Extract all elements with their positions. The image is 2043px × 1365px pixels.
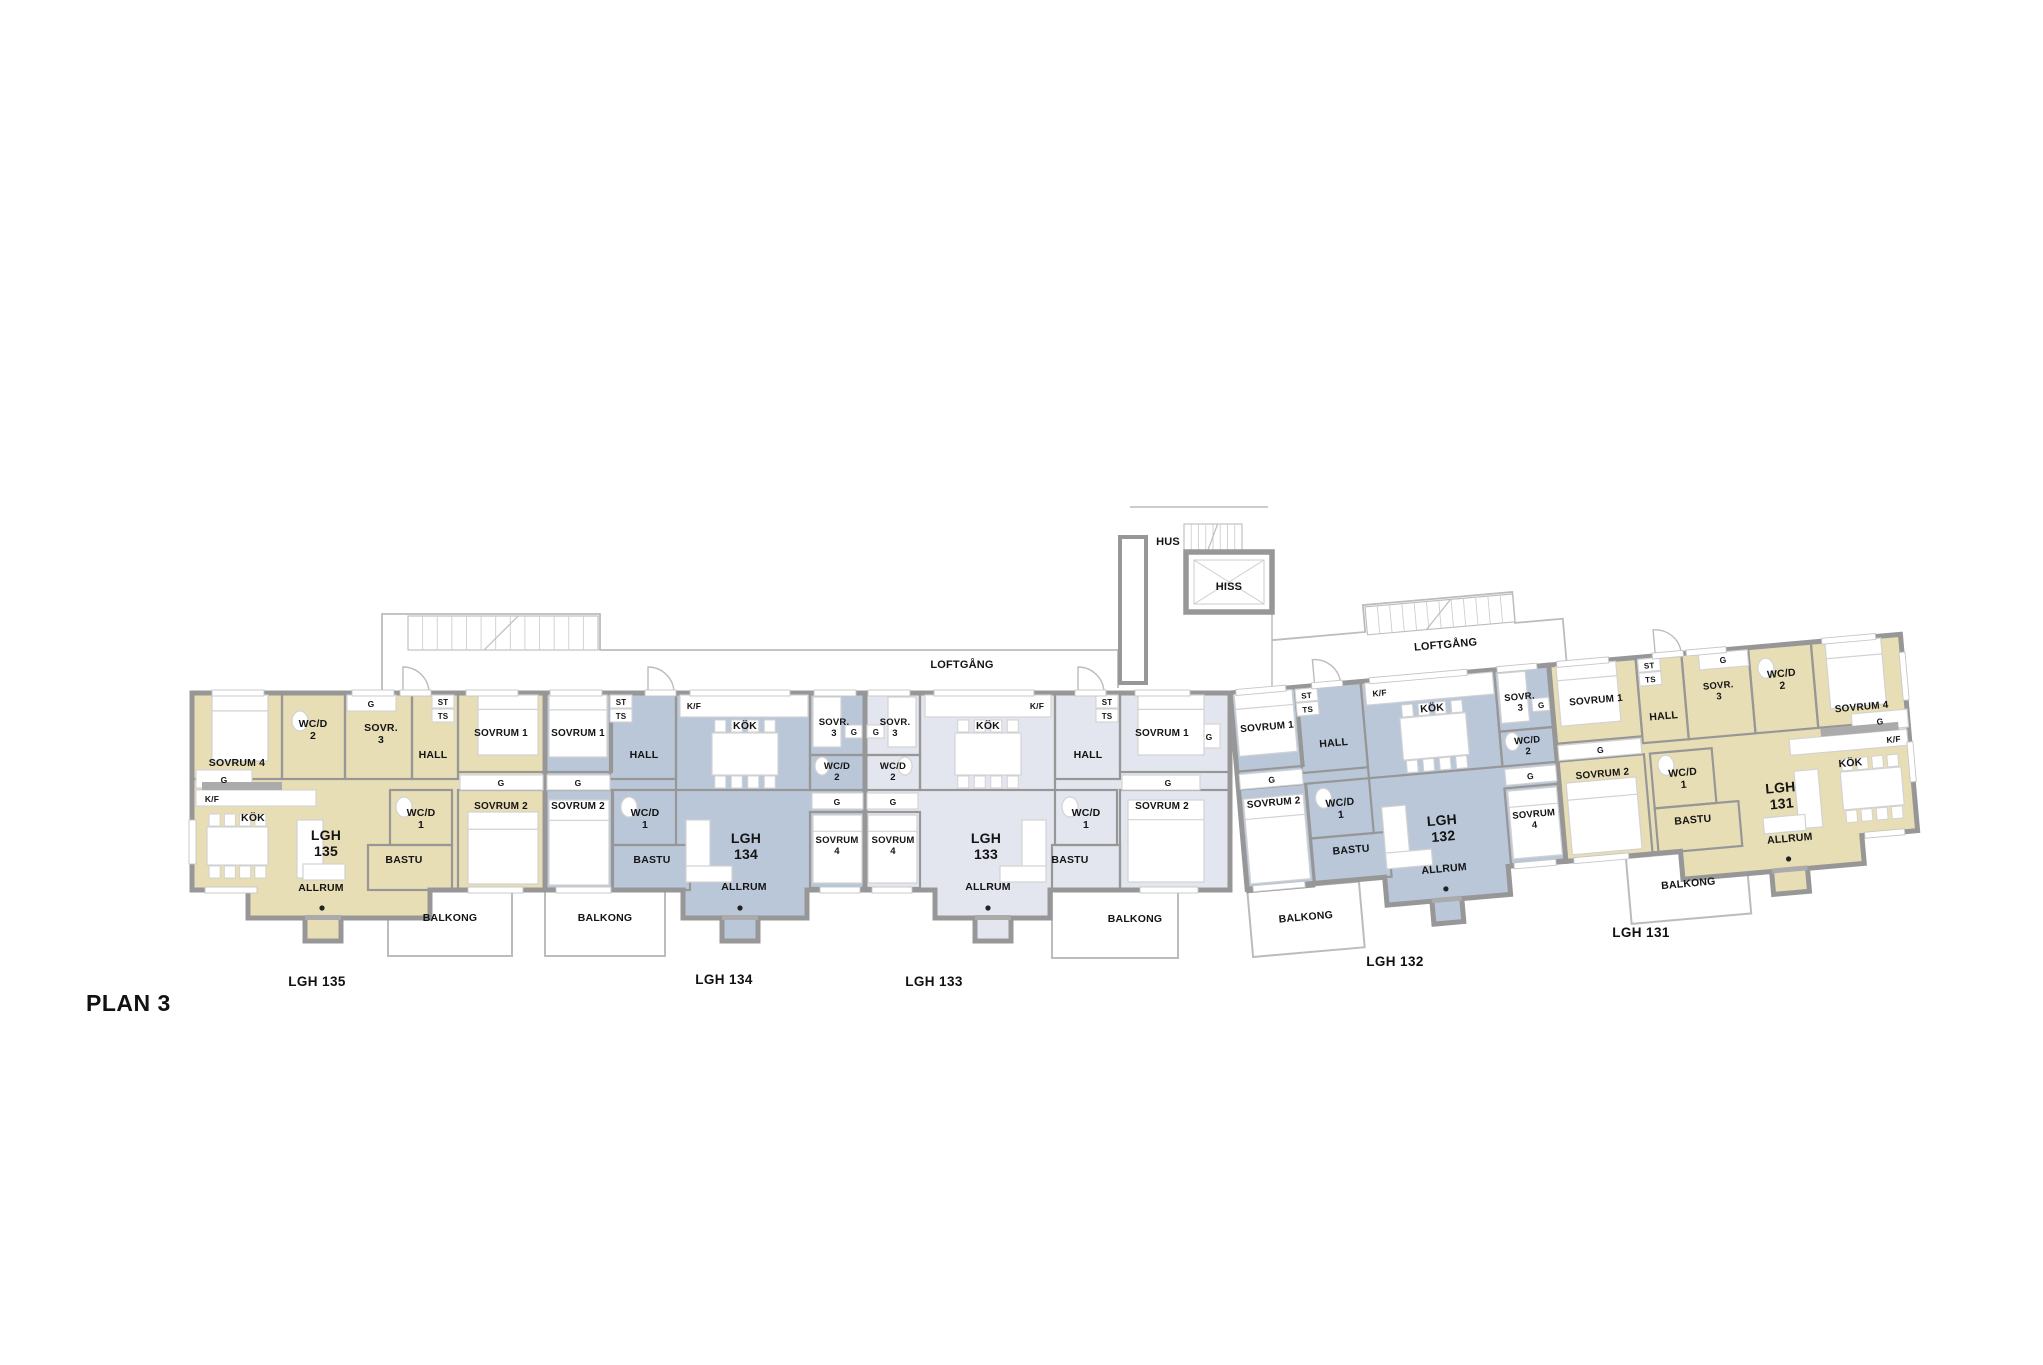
left-wing: LOFTGÅNGHUSHISSSOVRUM 4GWC/D2SOVR.3GHALL… (189, 507, 1272, 958)
window (1140, 887, 1198, 893)
label-133-g4: G (1165, 778, 1172, 788)
bed-133-sovrum2 (1128, 800, 1204, 882)
label-135-sovrum2: SOVRUM 2 (474, 801, 528, 812)
door-134-entry (648, 667, 674, 693)
window (550, 690, 602, 696)
sofa-135-b (303, 864, 345, 880)
label-134-g3: G (834, 797, 841, 807)
label-134-sovrum2: SOVRUM 2 (551, 801, 605, 812)
label-133-lgh: LGH133 (971, 830, 1001, 862)
label-131-g3: G (1597, 745, 1605, 756)
label-135-g2: G (368, 699, 375, 709)
apt-label-lgh-133: LGH 133 (905, 974, 963, 989)
tower-shaft (1120, 537, 1146, 683)
door-133-entry (1078, 667, 1104, 693)
window (556, 887, 611, 893)
bed-134-sovrum1 (549, 695, 607, 757)
apt-label-lgh-132: LGH 132 (1366, 954, 1424, 969)
label-135-st: ST (438, 698, 449, 707)
label-134-g1: G (575, 778, 582, 788)
bed-133-sovrum1 (1138, 695, 1204, 755)
label-131-st: ST (1644, 661, 1655, 671)
bed-131-sovrum2 (1566, 777, 1642, 855)
bed-135-sovrum4 (212, 695, 268, 761)
label-135-sovrum4: SOVRUM 4 (209, 757, 265, 769)
window (352, 690, 394, 696)
label-135-hall: HALL (419, 749, 448, 761)
window (212, 690, 264, 696)
label-132-st: ST (1301, 691, 1312, 701)
bed-135-sovrum1 (478, 695, 538, 755)
label-134-kf: K/F (687, 701, 701, 711)
label-131-g1: G (1719, 655, 1727, 666)
hiss-label: HISS (1216, 581, 1242, 593)
porch-cap-134 (722, 915, 758, 920)
bed-131-sovrum4 (1825, 638, 1887, 709)
loftgang-label-left: LOFTGÅNG (930, 658, 993, 671)
label-133-kok: KÖK (976, 719, 1000, 732)
label-135-kok: KÖK (241, 811, 265, 824)
label-133-bastu: BASTU (1051, 854, 1088, 866)
label-132-g2: G (1538, 701, 1545, 711)
label-balkong-134: BALKONG (578, 912, 632, 924)
label-134-sovrum1: SOVRUM 1 (551, 728, 605, 739)
window (690, 690, 790, 696)
label-134-st: ST (616, 698, 627, 707)
label-131-kok: KÖK (1838, 755, 1863, 770)
label-131-lgh: LGH131 (1765, 778, 1798, 813)
stair-left (408, 616, 598, 650)
counter-bar-135 (202, 782, 282, 790)
closet-133-g (1122, 775, 1200, 790)
label-135-ts: TS (438, 712, 449, 721)
window (814, 690, 856, 696)
door-gap (400, 690, 431, 696)
window (868, 690, 910, 696)
door-gap (645, 690, 676, 696)
label-132-lgh: LGH132 (1426, 811, 1459, 846)
label-135-g3: G (498, 778, 505, 788)
stair-right (1365, 594, 1515, 635)
label-134-lgh: LGH134 (731, 830, 761, 862)
apt-label-lgh-135: LGH 135 (288, 974, 346, 989)
sofa-134-b (686, 866, 732, 882)
label-132-g3: G (1527, 771, 1535, 782)
label-131-ts: TS (1645, 675, 1657, 685)
label-135-sovrum1: SOVRUM 1 (474, 728, 528, 739)
entry-dot-134 (737, 905, 742, 910)
label-132-ts: TS (1302, 705, 1314, 715)
label-135-lgh: LGH135 (311, 827, 341, 859)
label-134-bastu: BASTU (633, 854, 670, 866)
label-133-ts: TS (1102, 712, 1113, 721)
plan-title: PLAN 3 (86, 990, 171, 1017)
label-133-kf: K/F (1030, 701, 1044, 711)
window (189, 820, 196, 864)
label-133-allrum: ALLRUM (965, 881, 1011, 893)
window (205, 887, 257, 893)
label-134-kok: KÖK (733, 719, 757, 732)
porch-cap-133 (975, 915, 1011, 920)
window (466, 690, 518, 696)
label-135-g1: G (221, 775, 228, 785)
label-131-kf: K/F (1886, 734, 1901, 745)
label-135-kf: K/F (205, 794, 219, 804)
window (468, 887, 523, 893)
label-balkong-135: BALKONG (423, 912, 477, 924)
window (1135, 690, 1190, 696)
label-134-g2: G (851, 728, 857, 737)
window (872, 887, 912, 893)
label-131-hall: HALL (1649, 709, 1679, 723)
bed-135-sovrum2 (468, 812, 538, 884)
window (820, 887, 860, 893)
label-133-g1: G (873, 728, 879, 737)
right-wing: LOFTGÅNGSOVRUM 1STTSHALLGSOVRUM 2WC/D1BA… (1223, 558, 1926, 957)
hus-label: HUS (1156, 536, 1180, 548)
loftgang-label-right: LOFTGÅNG (1413, 635, 1477, 653)
apt-label-lgh-131: LGH 131 (1612, 925, 1670, 940)
door-135-entry (403, 667, 429, 693)
label-133-sovrum1: SOVRUM 1 (1135, 728, 1189, 739)
floorplan-page: LOFTGÅNGHUSHISSSOVRUM 4GWC/D2SOVR.3GHALL… (0, 0, 2043, 1365)
apt-label-lgh-134: LGH 134 (695, 972, 753, 987)
label-133-hall: HALL (1074, 749, 1103, 761)
window (934, 690, 1034, 696)
floorplan-drawing: LOFTGÅNGHUSHISSSOVRUM 4GWC/D2SOVR.3GHALL… (0, 0, 2043, 1365)
door-gap (1075, 690, 1106, 696)
label-134-allrum: ALLRUM (721, 881, 767, 893)
bed-134-sovrum2 (549, 800, 609, 885)
label-134-hall: HALL (630, 749, 659, 761)
entry-dot-135 (319, 905, 324, 910)
label-135-allrum: ALLRUM (298, 882, 344, 894)
stair-hus (1184, 524, 1242, 552)
label-133-g3: G (1206, 732, 1213, 742)
porch-cap-135 (305, 915, 341, 920)
label-134-ts: TS (616, 712, 627, 721)
label-132-kok: KÖK (1420, 700, 1445, 715)
label-balkong-133: BALKONG (1108, 913, 1162, 925)
entry-dot-133 (985, 905, 990, 910)
label-131-g2: G (1876, 716, 1884, 727)
label-132-hall: HALL (1319, 736, 1349, 750)
label-133-st: ST (1102, 698, 1113, 707)
label-135-bastu: BASTU (385, 854, 422, 866)
label-133-sovrum2: SOVRUM 2 (1135, 801, 1189, 812)
sofa-133-b (1000, 866, 1046, 882)
label-133-g2: G (890, 797, 897, 807)
label-132-g1: G (1268, 774, 1276, 785)
label-132-kf: K/F (1372, 687, 1387, 698)
